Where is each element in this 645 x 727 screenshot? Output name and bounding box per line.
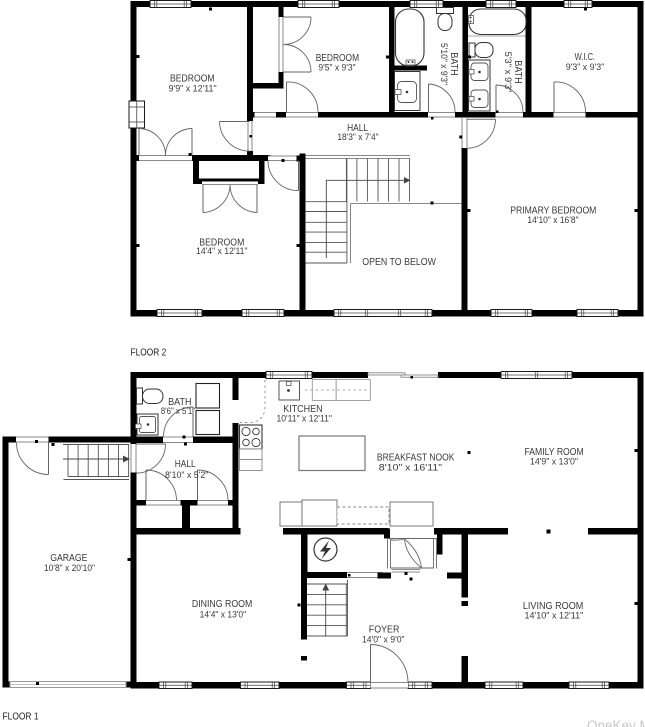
svg-text:14'4" x 13'0": 14'4" x 13'0" <box>200 610 247 621</box>
svg-text:OPEN TO BELOW: OPEN TO BELOW <box>362 257 436 268</box>
svg-text:18'3" x 7'4": 18'3" x 7'4" <box>337 132 378 143</box>
svg-text:8'6" x 5'1": 8'6" x 5'1" <box>161 406 195 417</box>
svg-text:5'10" x 9'3": 5'10" x 9'3" <box>438 43 449 85</box>
svg-text:9'3" x 9'3": 9'3" x 9'3" <box>566 62 604 73</box>
svg-text:14'10" x 16'8": 14'10" x 16'8" <box>527 215 578 226</box>
svg-text:HALL: HALL <box>175 459 196 470</box>
svg-text:14'4" x 12'11": 14'4" x 12'11" <box>196 246 248 257</box>
svg-text:FLOOR 1: FLOOR 1 <box>3 711 39 722</box>
svg-text:OneKey MLS: OneKey MLS <box>587 718 645 727</box>
svg-text:14'9" x 13'0": 14'9" x 13'0" <box>530 457 578 468</box>
svg-text:5'3" x 9'3": 5'3" x 9'3" <box>502 52 513 93</box>
svg-text:8'10" x 5'2": 8'10" x 5'2" <box>165 470 208 481</box>
svg-text:10'8" x 20'10": 10'8" x 20'10" <box>44 563 95 574</box>
svg-text:10'11" x 12'11": 10'11" x 12'11" <box>276 414 332 425</box>
svg-text:FLOOR 2: FLOOR 2 <box>131 347 167 358</box>
svg-text:14'0" x 9'0": 14'0" x 9'0" <box>362 635 405 646</box>
svg-text:14'10" x 12'11": 14'10" x 12'11" <box>524 611 583 622</box>
svg-text:DINING ROOM: DINING ROOM <box>192 599 252 610</box>
svg-text:9'5" x 9'3": 9'5" x 9'3" <box>318 62 355 73</box>
svg-text:8'10" x 16'11": 8'10" x 16'11" <box>379 463 442 474</box>
svg-text:9'9" x 12'11": 9'9" x 12'11" <box>169 83 217 94</box>
